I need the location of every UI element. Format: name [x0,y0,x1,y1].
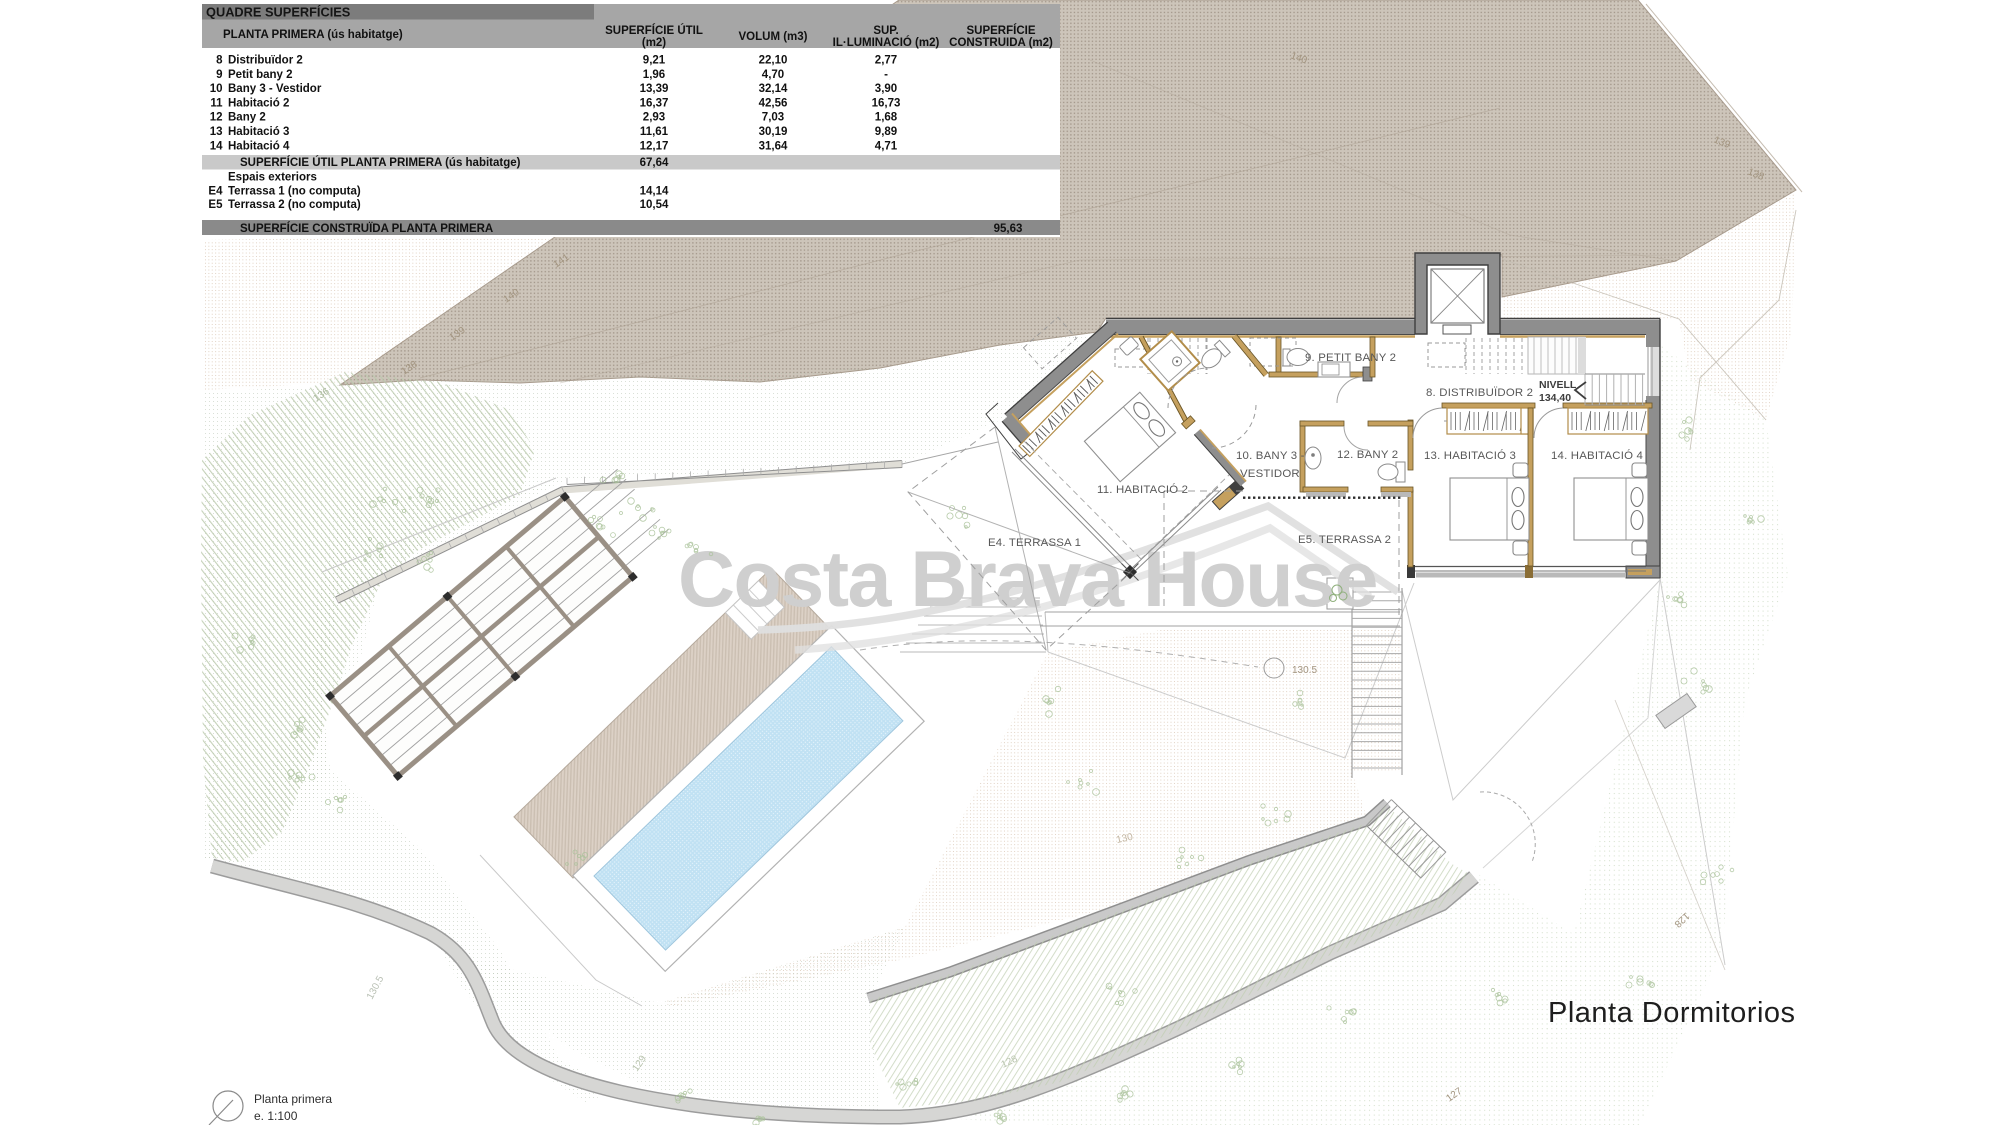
svg-text:22,10: 22,10 [759,55,788,67]
svg-text:Habitació 2: Habitació 2 [228,97,289,109]
svg-text:E5. TERRASSA 2: E5. TERRASSA 2 [1298,534,1391,546]
svg-text:3,90: 3,90 [875,83,897,95]
svg-text:E5: E5 [208,199,223,211]
svg-text:CONSTRUIDA (m2): CONSTRUIDA (m2) [949,37,1053,49]
svg-text:12. BANY 2: 12. BANY 2 [1337,449,1398,461]
svg-text:10: 10 [210,83,223,95]
svg-text:E4: E4 [208,186,223,198]
svg-text:Planta primera: Planta primera [254,1092,332,1106]
svg-text:16,37: 16,37 [640,97,669,109]
svg-text:11,61: 11,61 [640,126,669,138]
svg-text:14,14: 14,14 [640,186,669,198]
svg-text:Planta Dormitorios: Planta Dormitorios [1548,997,1796,1029]
svg-text:1,68: 1,68 [875,112,898,124]
svg-text:NIVELL: NIVELL [1539,379,1577,391]
svg-text:QUADRE SUPERFÍCIES: QUADRE SUPERFÍCIES [206,5,351,20]
svg-text:SUPERFÍCIE ÚTIL PLANTA PRIMERA: SUPERFÍCIE ÚTIL PLANTA PRIMERA (ús habit… [240,156,521,169]
svg-text:Habitació 4: Habitació 4 [228,140,290,152]
svg-text:32,14: 32,14 [759,83,788,95]
svg-text:VOLUM (m3): VOLUM (m3) [739,31,808,43]
svg-text:7,03: 7,03 [762,112,784,124]
svg-text:-: - [884,69,888,81]
svg-text:95,63: 95,63 [994,223,1023,235]
svg-text:2,93: 2,93 [643,112,665,124]
svg-text:9. PETIT BANY 2: 9. PETIT BANY 2 [1305,352,1396,364]
svg-text:130.5: 130.5 [1292,665,1317,676]
svg-text:10,54: 10,54 [640,199,669,211]
svg-text:Bany 3 - Vestidor: Bany 3 - Vestidor [228,83,322,95]
svg-text:SUP.: SUP. [873,25,898,37]
svg-text:16,73: 16,73 [872,97,901,109]
svg-text:8. DISTRIBUÏDOR 2: 8. DISTRIBUÏDOR 2 [1426,387,1533,399]
svg-text:Terrassa 1 (no computa): Terrassa 1 (no computa) [228,186,361,198]
svg-text:9: 9 [216,69,222,81]
svg-text:14: 14 [210,140,223,152]
svg-text:13,39: 13,39 [640,83,669,95]
svg-text:Petit bany 2: Petit bany 2 [228,69,293,81]
svg-text:134,40: 134,40 [1539,392,1571,404]
svg-text:42,56: 42,56 [759,97,788,109]
svg-text:67,64: 67,64 [640,157,669,169]
svg-text:PLANTA PRIMERA (ús habitatge): PLANTA PRIMERA (ús habitatge) [223,29,403,41]
svg-text:13: 13 [210,126,223,138]
svg-text:(m2): (m2) [642,37,666,49]
svg-text:IL·LUMINACIÓ (m2): IL·LUMINACIÓ (m2) [833,36,940,49]
svg-text:8: 8 [216,55,223,67]
svg-text:4,71: 4,71 [875,140,898,152]
svg-text:Habitació 3: Habitació 3 [228,126,289,138]
svg-text:9,89: 9,89 [875,126,897,138]
svg-text:Espais exteriors: Espais exteriors [228,172,317,184]
svg-text:E4. TERRASSA 1: E4. TERRASSA 1 [988,537,1081,549]
svg-text:SUPERFÍCIE CONSTRUÏDA PLANTA P: SUPERFÍCIE CONSTRUÏDA PLANTA PRIMERA [240,222,493,235]
svg-text:2,77: 2,77 [875,55,897,67]
svg-text:Terrassa 2 (no computa): Terrassa 2 (no computa) [228,199,361,211]
svg-text:4,70: 4,70 [762,69,784,81]
svg-text:10. BANY 3 -: 10. BANY 3 - [1236,450,1305,462]
svg-text:30,19: 30,19 [759,126,788,138]
svg-text:11: 11 [210,97,223,109]
svg-text:14. HABITACIÓ 4: 14. HABITACIÓ 4 [1551,449,1643,462]
svg-text:12,17: 12,17 [640,140,669,152]
svg-text:31,64: 31,64 [759,140,788,152]
svg-text:e. 1:100: e. 1:100 [254,1109,298,1123]
svg-text:9,21: 9,21 [643,55,666,67]
svg-text:13. HABITACIÓ 3: 13. HABITACIÓ 3 [1424,449,1516,462]
svg-text:Bany 2: Bany 2 [228,112,266,124]
svg-text:Distribuïdor 2: Distribuïdor 2 [228,55,303,67]
svg-text:SUPERFÍCIE: SUPERFÍCIE [966,24,1035,37]
svg-text:11. HABITACIÓ 2: 11. HABITACIÓ 2 [1097,483,1188,496]
svg-text:12: 12 [210,112,223,124]
svg-text:VESTIDOR: VESTIDOR [1240,468,1300,480]
svg-text:1,96: 1,96 [643,69,665,81]
svg-text:SUPERFÍCIE ÚTIL: SUPERFÍCIE ÚTIL [605,24,703,37]
